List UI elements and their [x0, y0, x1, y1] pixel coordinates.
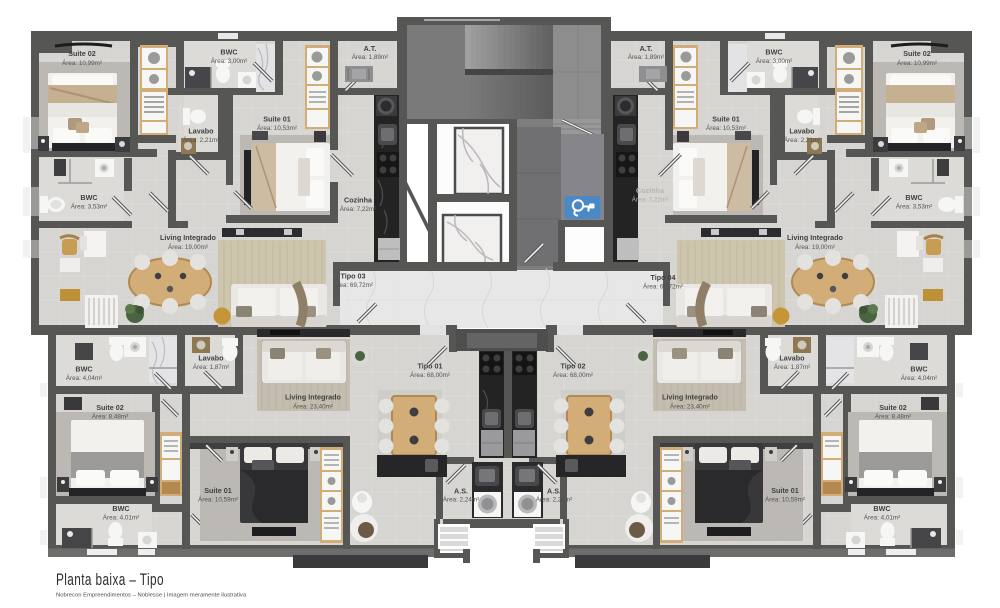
svg-text:Suite 02: Suite 02 [903, 49, 931, 58]
svg-text:Área: 3,53m²: Área: 3,53m² [71, 202, 107, 211]
svg-text:Área: 1,87m²: Área: 1,87m² [193, 362, 229, 371]
svg-text:A.S.: A.S. [454, 487, 468, 496]
svg-text:Área: 2,21m²: Área: 2,21m² [183, 135, 219, 144]
svg-text:Área: 69,72m²: Área: 69,72m² [643, 281, 683, 290]
svg-text:Área: 19,00m²: Área: 19,00m² [795, 242, 835, 251]
svg-text:A.S.: A.S. [547, 487, 561, 496]
svg-text:BWC: BWC [765, 48, 782, 57]
svg-text:BWC: BWC [220, 48, 237, 57]
svg-text:BWC: BWC [873, 504, 890, 513]
svg-text:Área: 3,00m²: Área: 3,00m² [211, 56, 247, 65]
svg-text:Área: 2,24m²: Área: 2,24m² [443, 495, 479, 504]
svg-text:Lavabo: Lavabo [198, 354, 224, 363]
svg-text:Suite 01: Suite 01 [204, 486, 232, 495]
svg-text:Área: 4,04m²: Área: 4,04m² [901, 373, 937, 382]
svg-text:Área: 3,53m²: Área: 3,53m² [896, 202, 932, 211]
svg-text:Área: 10,53m²: Área: 10,53m² [257, 123, 297, 132]
svg-text:BWC: BWC [910, 365, 927, 374]
svg-text:Área: 1,87m²: Área: 1,87m² [774, 362, 810, 371]
svg-text:Living Integrado: Living Integrado [285, 393, 342, 402]
svg-text:Living Integrado: Living Integrado [662, 393, 719, 402]
svg-text:Tipo 04: Tipo 04 [650, 273, 675, 282]
svg-text:Área: 69,72m²: Área: 69,72m² [333, 280, 373, 289]
svg-text:BWC: BWC [112, 504, 129, 513]
svg-text:Tipo 01: Tipo 01 [417, 362, 442, 371]
svg-text:Área: 4,01m²: Área: 4,01m² [864, 513, 900, 522]
svg-text:Área: 10,99m²: Área: 10,99m² [897, 58, 937, 67]
svg-text:BWC: BWC [75, 365, 92, 374]
svg-text:Área: 4,01m²: Área: 4,01m² [103, 513, 139, 522]
svg-text:Living Integrado: Living Integrado [160, 233, 217, 242]
svg-text:Área: 23,40m²: Área: 23,40m² [293, 402, 333, 411]
svg-text:Área: 8,48m²: Área: 8,48m² [92, 412, 128, 421]
svg-text:Área: 10,59m²: Área: 10,59m² [198, 495, 238, 504]
svg-text:Área: 2,21m²: Área: 2,21m² [784, 135, 820, 144]
svg-text:Área: 19,00m²: Área: 19,00m² [168, 242, 208, 251]
svg-text:Área: 4,04m²: Área: 4,04m² [66, 373, 102, 382]
svg-text:Área: 2,24m²: Área: 2,24m² [536, 495, 572, 504]
svg-text:Suite 02: Suite 02 [879, 403, 907, 412]
svg-text:Tipo 03: Tipo 03 [340, 272, 365, 281]
svg-text:Suite 01: Suite 01 [771, 486, 799, 495]
svg-text:Lavabo: Lavabo [779, 354, 805, 363]
svg-text:Área: 7,22m²: Área: 7,22m² [340, 204, 376, 213]
svg-text:Suite 01: Suite 01 [263, 115, 291, 124]
svg-text:BWC: BWC [905, 193, 922, 202]
svg-text:Área: 68,00m²: Área: 68,00m² [553, 370, 593, 379]
svg-text:A.T.: A.T. [640, 44, 653, 53]
svg-text:Planta baixa – Tipo: Planta baixa – Tipo [56, 571, 164, 590]
svg-text:Área: 8,48m²: Área: 8,48m² [875, 412, 911, 421]
svg-text:Área: 10,59m²: Área: 10,59m² [765, 495, 805, 504]
svg-text:Tipo 02: Tipo 02 [560, 362, 585, 371]
svg-text:Área: 7,22m²: Área: 7,22m² [632, 195, 668, 204]
svg-text:Suite 02: Suite 02 [96, 403, 124, 412]
svg-text:Suite 02: Suite 02 [68, 49, 96, 58]
svg-text:Lavabo: Lavabo [188, 127, 214, 136]
svg-text:A.T.: A.T. [364, 44, 377, 53]
svg-text:Área: 3,00m²: Área: 3,00m² [756, 56, 792, 65]
svg-text:Suite 01: Suite 01 [712, 115, 740, 124]
svg-text:Área: 1,89m²: Área: 1,89m² [352, 52, 388, 61]
svg-text:Cozinha: Cozinha [344, 196, 373, 205]
svg-text:Área: 10,53m²: Área: 10,53m² [706, 123, 746, 132]
svg-text:Living Integrado: Living Integrado [787, 233, 844, 242]
svg-text:Área: 23,40m²: Área: 23,40m² [670, 402, 710, 411]
svg-text:Nobrecon Empreendimentos – Nob: Nobrecon Empreendimentos – Noblesse | Im… [56, 593, 247, 599]
svg-text:Cozinha: Cozinha [636, 186, 665, 195]
svg-text:Lavabo: Lavabo [789, 127, 815, 136]
svg-text:Área: 68,00m²: Área: 68,00m² [410, 370, 450, 379]
svg-text:Área: 1,89m²: Área: 1,89m² [628, 52, 664, 61]
svg-text:Área: 10,99m²: Área: 10,99m² [62, 58, 102, 67]
svg-text:BWC: BWC [80, 193, 97, 202]
